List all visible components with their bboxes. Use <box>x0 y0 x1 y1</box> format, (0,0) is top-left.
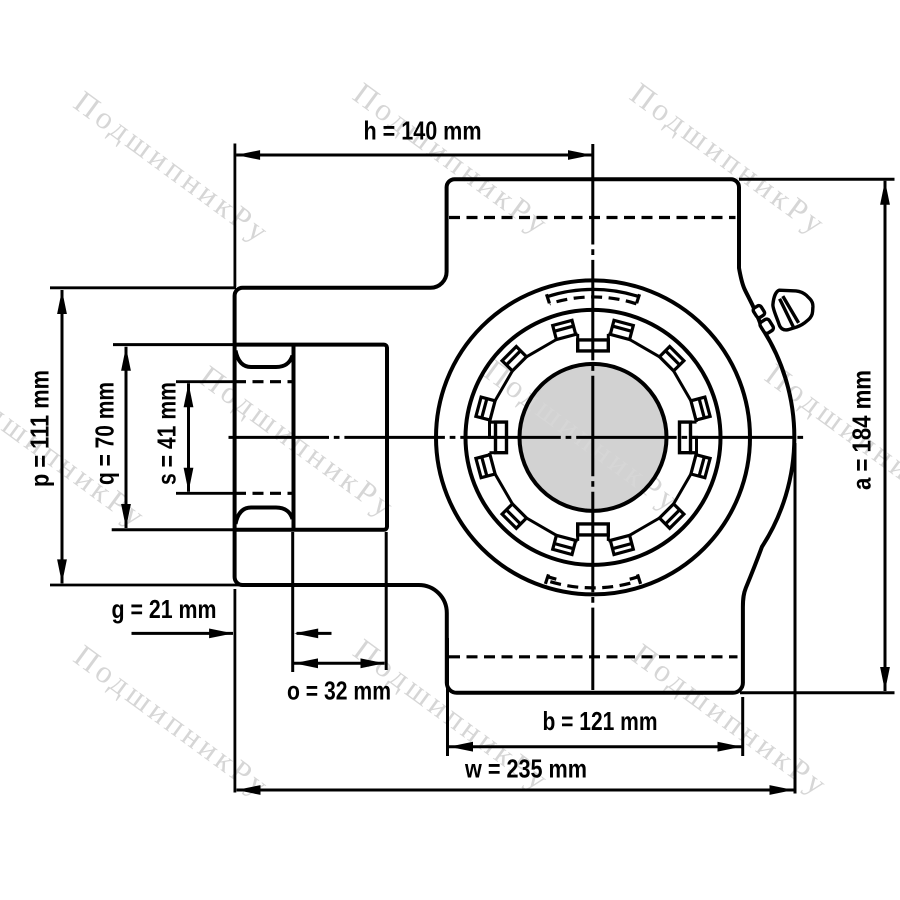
svg-text:o = 32 mm: o = 32 mm <box>287 676 391 706</box>
svg-text:p = 111 mm: p = 111 mm <box>25 370 55 487</box>
svg-text:w = 235 mm: w = 235 mm <box>464 754 587 784</box>
svg-text:s = 41 mm: s = 41 mm <box>152 382 182 485</box>
svg-text:b = 121 mm: b = 121 mm <box>543 706 658 736</box>
svg-text:q = 70 mm: q = 70 mm <box>90 382 120 485</box>
svg-text:h = 140 mm: h = 140 mm <box>364 116 482 146</box>
svg-text:a = 184 mm: a = 184 mm <box>847 370 877 490</box>
svg-text:g = 21 mm: g = 21 mm <box>112 594 217 624</box>
